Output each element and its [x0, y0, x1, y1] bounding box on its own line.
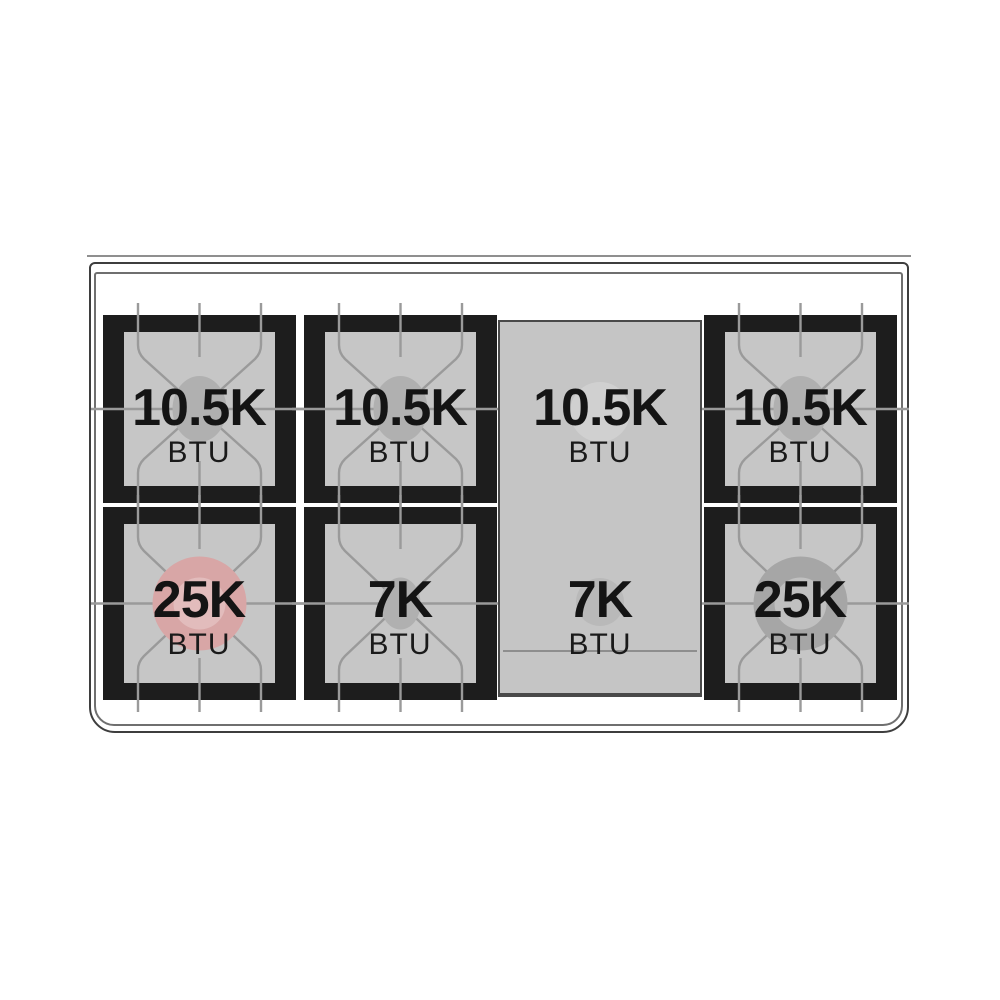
burner-label-center-left-front: 7K BTU: [300, 574, 500, 662]
burner-label-griddle-front: 7K BTU: [500, 574, 700, 662]
burner-label-center-left-rear: 10.5K BTU: [300, 382, 500, 470]
burner-label-left-front: 25K BTU: [99, 574, 299, 662]
burner-label-left-rear: 10.5K BTU: [99, 382, 299, 470]
cooktop-diagram: 10.5K BTU 10.5K BTU 10.5K BTU 10.5K BTU …: [0, 0, 1000, 1000]
burner-label-griddle-rear: 10.5K BTU: [500, 382, 700, 470]
burner-output: 7K: [300, 574, 500, 626]
burner-unit: BTU: [500, 435, 700, 470]
burner-label-right-rear: 10.5K BTU: [700, 382, 900, 470]
burner-label-right-front: 25K BTU: [700, 574, 900, 662]
burner-unit: BTU: [300, 627, 500, 662]
burner-output: 10.5K: [500, 382, 700, 434]
burner-unit: BTU: [700, 627, 900, 662]
burner-output: 10.5K: [700, 382, 900, 434]
burner-output: 10.5K: [99, 382, 299, 434]
burner-unit: BTU: [99, 435, 299, 470]
range-back-trim: [87, 255, 911, 257]
burner-unit: BTU: [700, 435, 900, 470]
burner-unit: BTU: [99, 627, 299, 662]
burner-output: 7K: [500, 574, 700, 626]
burner-output: 25K: [700, 574, 900, 626]
burner-output: 10.5K: [300, 382, 500, 434]
burner-unit: BTU: [300, 435, 500, 470]
burner-unit: BTU: [500, 627, 700, 662]
burner-output: 25K: [99, 574, 299, 626]
